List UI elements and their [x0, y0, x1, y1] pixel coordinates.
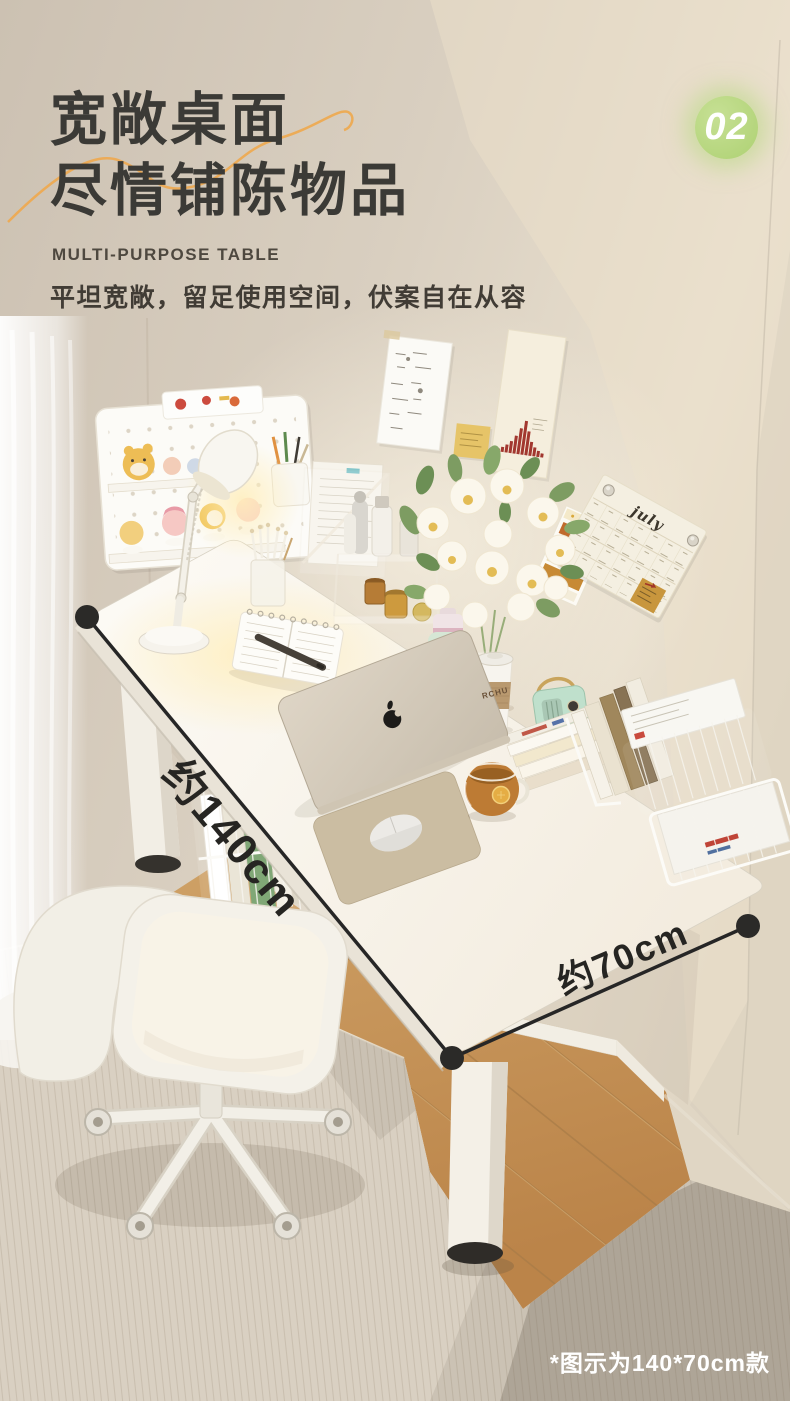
chair-seat: [108, 889, 353, 1099]
section-number-badge: 02: [695, 96, 758, 159]
measure-dot-right: [736, 914, 760, 938]
measure-dot-left: [75, 605, 99, 629]
headline-line1: 宽敞桌面: [50, 92, 290, 149]
headline-line2: 尽情铺陈物品: [50, 163, 410, 220]
measure-dot-front: [440, 1046, 464, 1070]
office-chair: [14, 886, 365, 1239]
footnote-text: *图示为140*70cm款: [550, 1344, 770, 1378]
subtitle-english: MULTI-PURPOSE TABLE: [52, 245, 280, 265]
product-detail-banner: 宽敞桌面 尽情铺陈物品 MULTI-PURPOSE TABLE 平坦宽敞，留足使…: [0, 0, 790, 1401]
description-text: 平坦宽敞，留足使用空间，伏案自在从容: [50, 278, 527, 314]
